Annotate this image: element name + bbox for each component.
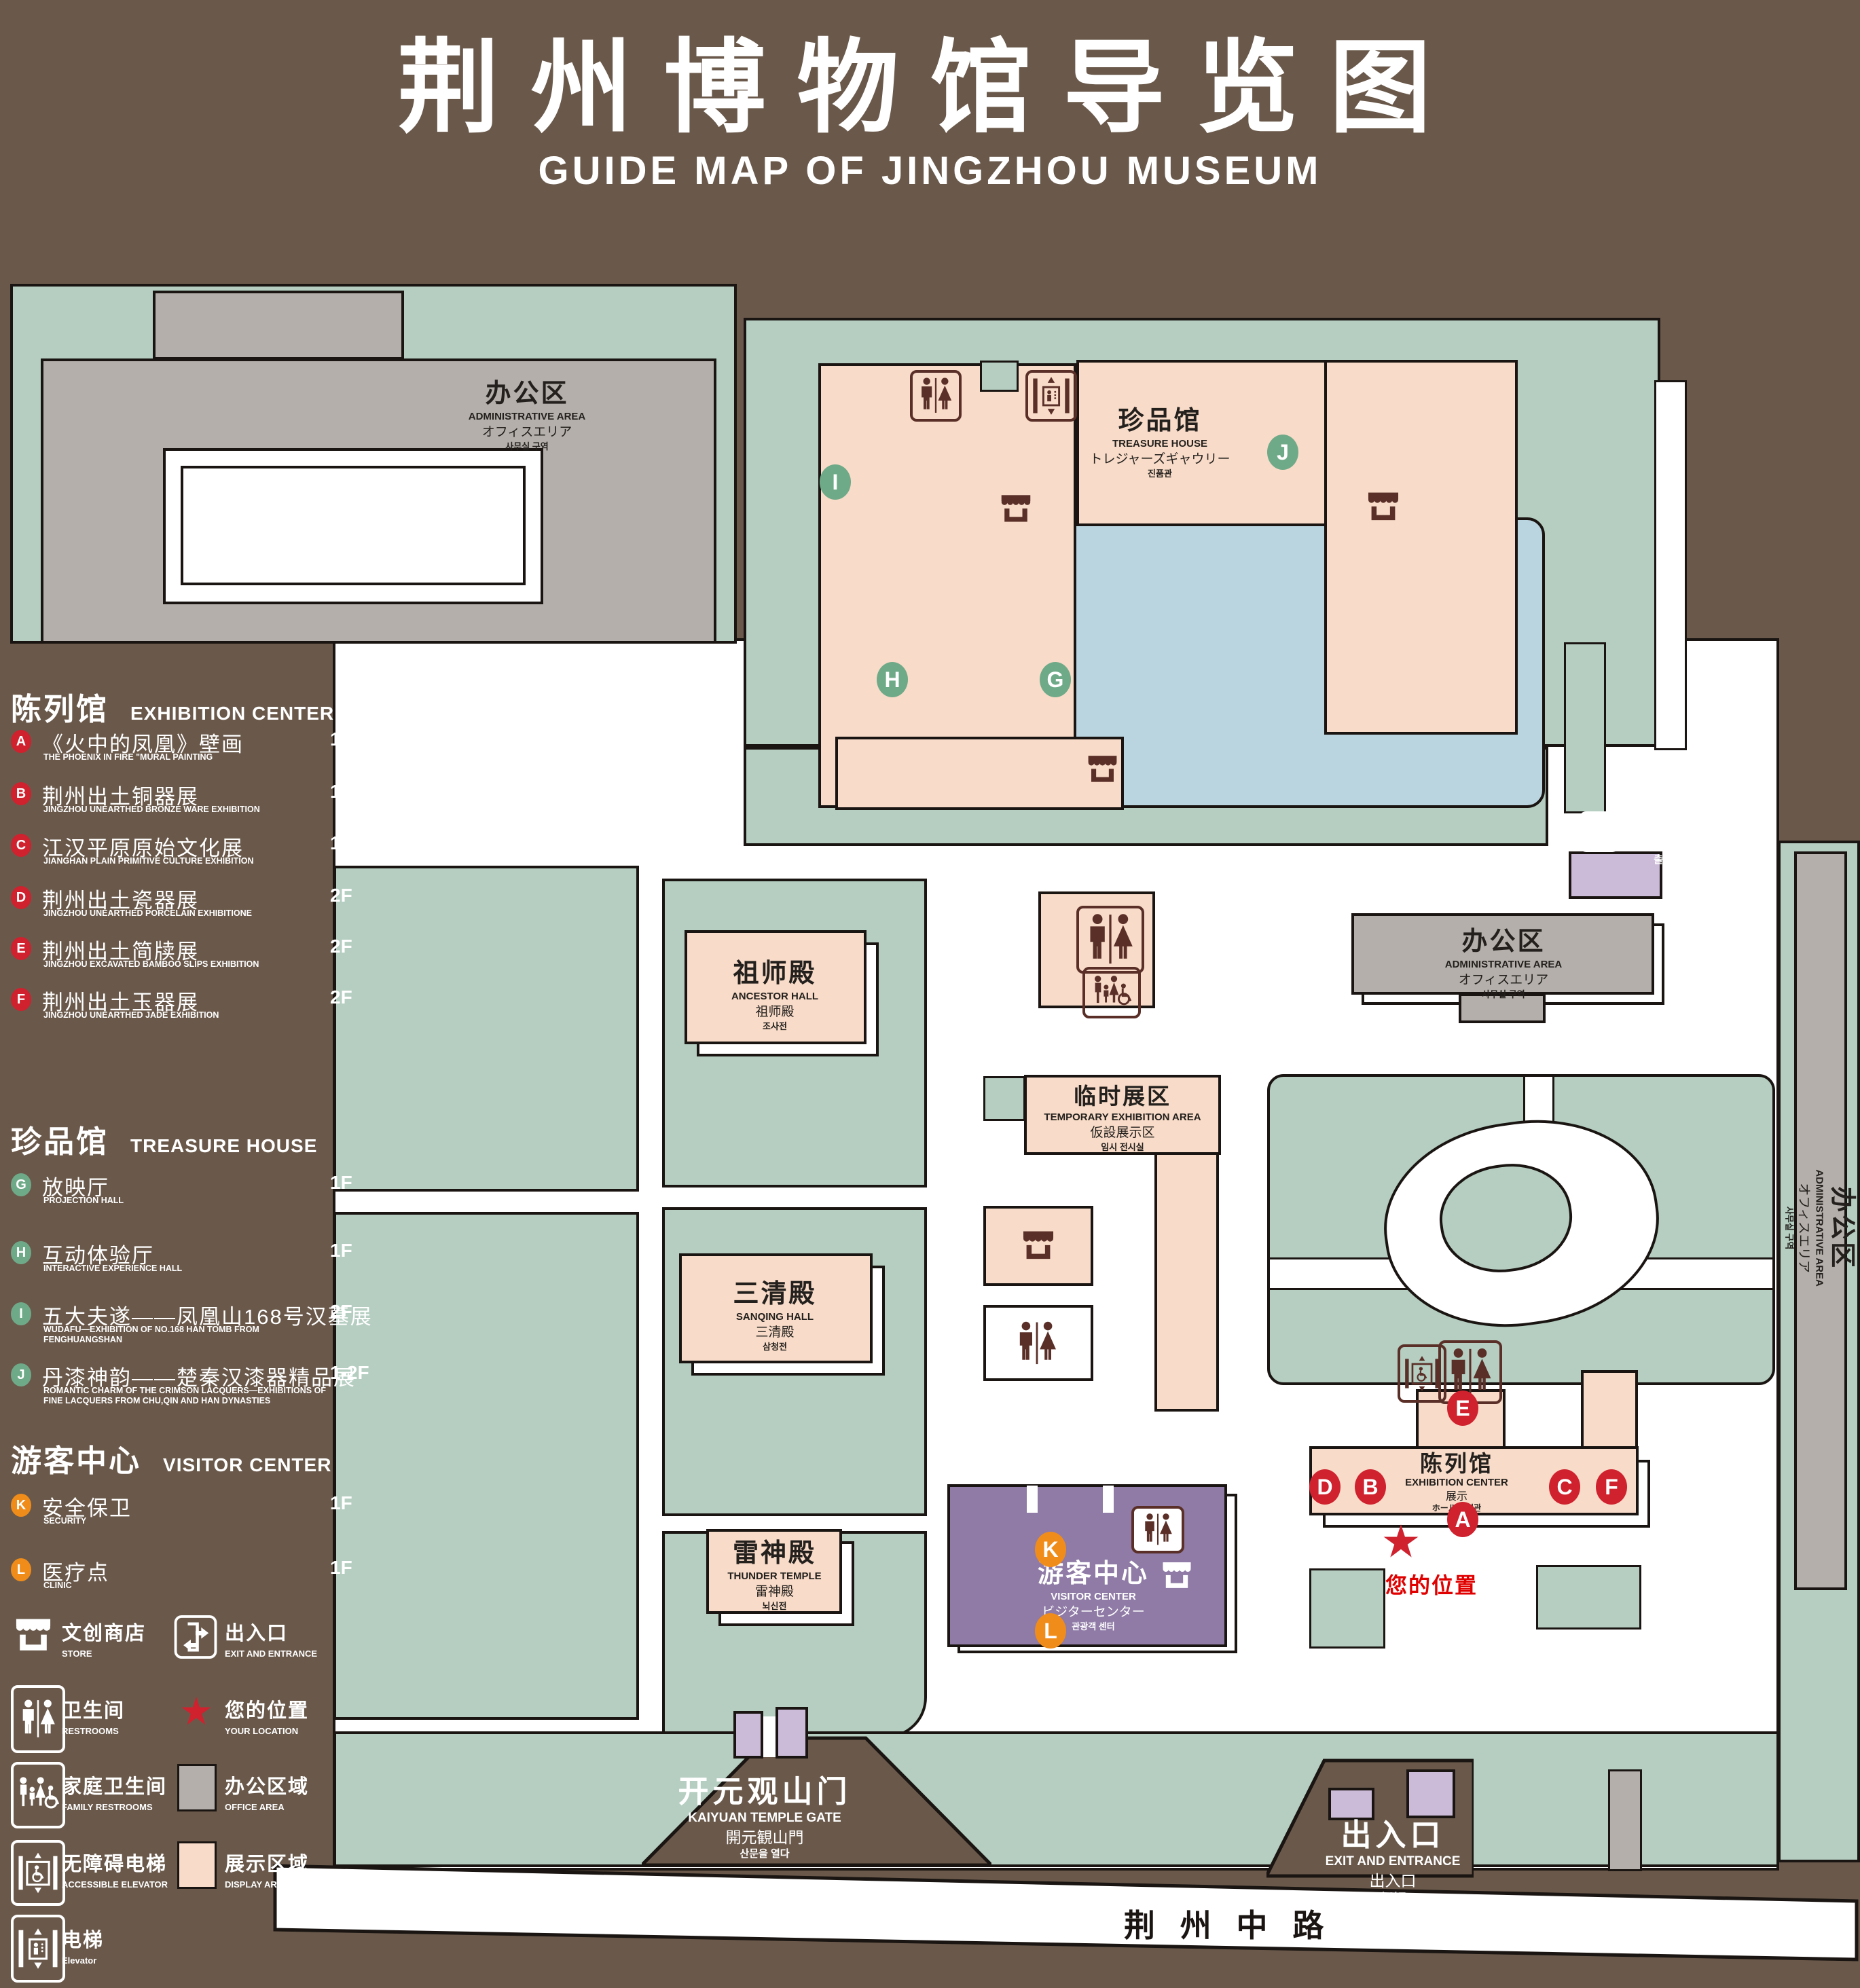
legend-item-floor: 1F — [330, 781, 384, 803]
legend-item-en: JINGZHOU UNEARTHED BRONZE WARE EXHIBITIO… — [43, 805, 329, 815]
legend-item-f: F 荆州出土玉器展 JINGZHOU UNEARTHED JADE EXHIBI… — [11, 988, 459, 1035]
gray-strip-bottom-right — [1608, 1769, 1642, 1871]
legend-marker-j: J — [11, 1363, 31, 1386]
map-marker-h: H — [877, 662, 908, 697]
legend-item-floor: 1-2F — [330, 1362, 384, 1384]
page-title: 荆州博物馆导览图 — [0, 5, 1860, 153]
visitor-center-door-1 — [1027, 1486, 1038, 1513]
thunder-temple-label: 雷神殿 THUNDER TEMPLE 雷神殿 뇌신전 — [671, 1539, 878, 1611]
treasure-house-bottom-stub — [835, 737, 1124, 810]
map-marker-l: L — [1035, 1613, 1066, 1649]
legend-item-g: G 放映厅 PROJECTION HALL 1F — [11, 1173, 459, 1221]
legend-marker-f: F — [11, 988, 31, 1011]
map-marker-a: A — [1447, 1502, 1478, 1537]
legend-marker-b: B — [11, 782, 31, 805]
elevator-icon — [11, 1915, 65, 1983]
temporary-exhibition-column — [1154, 1152, 1219, 1412]
legend-item-en: PROJECTION HALL — [43, 1196, 329, 1206]
family-restroom-icon — [11, 1762, 65, 1828]
office-area-swatch — [177, 1764, 217, 1811]
restroom-icon — [1076, 906, 1144, 974]
map-marker-c: C — [1549, 1469, 1580, 1505]
south-exit-building-right — [1406, 1769, 1455, 1818]
legend-item-floor: 1F — [330, 1172, 384, 1194]
legend-item-floor: 1F — [330, 1240, 384, 1262]
legend-item-en: WUDAFU—EXHIBITION OF NO.168 HAN TOMB FRO… — [43, 1325, 329, 1345]
store-icon — [11, 1610, 56, 1661]
legend-item-en: SECURITY — [43, 1516, 329, 1526]
gate-tower-right — [776, 1707, 808, 1759]
legend-item-i: I 五大夫遂——凤凰山168号汉墓展 WUDAFU—EXHIBITION OF … — [11, 1302, 459, 1350]
legend-section-treasure-house: 珍品馆 TREASURE HOUSE — [11, 1117, 317, 1161]
legend-item-d: D 荆州出土瓷器展 JINGZHOU UNEARTHED PORCELAIN E… — [11, 886, 459, 934]
legend-marker-h: H — [11, 1241, 31, 1264]
legend-sidebar: 陈列馆 EXHIBITION CENTER A 《火中的凤凰》壁画 THE PH… — [11, 679, 459, 1988]
legend-marker-l: L — [11, 1558, 31, 1581]
green-patch-below-exhibition-left — [1309, 1568, 1385, 1649]
exit-icon — [174, 1609, 217, 1665]
green-patch-below-exhibition-right — [1536, 1565, 1641, 1630]
your-location-label: 您的位置 — [1385, 1568, 1478, 1600]
legend-symbol-office-area: 办公区域 OFFICE AREA — [225, 1771, 401, 1812]
legend-marker-a: A — [11, 730, 31, 753]
map-marker-g: G — [1040, 662, 1071, 697]
legend-item-floor: 1F — [330, 1557, 384, 1579]
treasure-house-right-wing — [1324, 360, 1518, 735]
legend-item-floor: 2F — [330, 936, 384, 957]
legend-item-en: THE PHOENIX IN FIRE "MURAL PAINTING — [43, 752, 329, 762]
legend-marker-g: G — [11, 1173, 31, 1196]
kaiyuan-gate-label: 开元观山门 KAIYUAN TEMPLE GATE 開元観山門 산문을 열다 — [663, 1773, 867, 1860]
legend-item-a: A 《火中的凤凰》壁画 THE PHOENIX IN FIRE "MURAL P… — [11, 730, 459, 777]
map-marker-b: B — [1355, 1469, 1386, 1505]
legend-marker-i: I — [11, 1302, 31, 1325]
legend-item-en: JINGZHOU UNEARTHED JADE EXHIBITION — [43, 1010, 329, 1020]
admin-strip-label: 办公区 ADMINISTRATIVE AREA オフィスエリア 사무실 구역 — [1784, 1126, 1857, 1330]
legend-item-floor: 1F — [330, 832, 384, 854]
admin-right-label: 办公区 ADMINISTRATIVE AREA オフィスエリア 사무실 구역 — [1384, 927, 1623, 999]
legend-marker-c: C — [11, 834, 31, 857]
elevator-icon — [1025, 370, 1077, 422]
legend-symbol-exit: 出入口 EXIT AND ENTRANCE — [225, 1617, 401, 1659]
map-marker-k: K — [1035, 1532, 1066, 1567]
visitor-center-door-2 — [1103, 1486, 1114, 1513]
legend-symbol-restrooms: 卫生间 RESTROOMS — [62, 1695, 238, 1736]
legend-marker-e: E — [11, 937, 31, 960]
admin-top-left-label: 办公区 ADMINISTRATIVE AREA オフィスエリア 사무실 구역 — [407, 379, 646, 452]
legend-section-exhibition-center: 陈列馆 EXHIBITION CENTER — [11, 684, 334, 729]
section-title-en: EXHIBITION CENTER — [130, 703, 334, 724]
legend-item-en: JINGZHOU EXCAVATED BAMBOO SLIPS EXHIBITI… — [43, 959, 329, 970]
legend-item-floor: 2F — [330, 987, 384, 1008]
map-marker-f: F — [1596, 1469, 1627, 1505]
legend-item-e: E 荆州出土简牍展 JINGZHOU EXCAVATED BAMBOO SLIP… — [11, 937, 459, 984]
legend-item-floor: 1F — [330, 729, 384, 750]
legend-item-en: ROMANTIC CHARM OF THE CRIMSON LACQUERS—E… — [43, 1386, 329, 1406]
treasure-top-notch — [980, 361, 1019, 392]
gate-tower-left — [733, 1711, 763, 1759]
exhibition-center-right — [1581, 1370, 1638, 1450]
sanqing-hall-label: 三清殿 SANQING HALL 三清殿 삼청전 — [673, 1279, 877, 1352]
restroom-icon — [1013, 1320, 1061, 1367]
exit-bottom-label: 出入口 EXIT AND ENTRANCE 出入口 출입구 — [1291, 1817, 1495, 1903]
legend-item-c: C 江汉平原原始文化展 JIANGHAN PLAIN PRIMITIVE CUL… — [11, 834, 459, 881]
store-icon — [997, 490, 1035, 528]
section-title-zh: 陈列馆 — [11, 684, 109, 729]
legend-item-en: INTERACTIVE EXPERIENCE HALL — [43, 1264, 329, 1274]
section-title-zh: 游客中心 — [11, 1436, 141, 1480]
store-icon — [1084, 751, 1121, 788]
ancestor-hall-label: 祖师殿 ANCESTOR HALL 祖师殿 조사전 — [673, 959, 877, 1031]
legend-marker-k: K — [11, 1494, 31, 1517]
restroom-icon — [1131, 1506, 1184, 1553]
legend-section-visitor-center: 游客中心 VISITOR CENTER — [11, 1436, 331, 1480]
legend-item-floor: 2F — [330, 885, 384, 906]
page-subtitle: GUIDE MAP OF JINGZHOU MUSEUM — [0, 148, 1860, 194]
section-title-zh: 珍品馆 — [11, 1117, 109, 1161]
legend-symbol-elevator: 电梯 Elevator — [62, 1924, 238, 1966]
legend-item-k: K 安全保卫 SECURITY 1F — [11, 1494, 459, 1541]
gate-passage — [763, 1716, 776, 1757]
admin-building-top-tab — [153, 291, 404, 360]
temporary-exhibition-label: 临时展区 TEMPORARY EXHIBITION AREA 仮設展示区 임시 … — [1014, 1084, 1231, 1152]
legend-item-floor: 2F — [330, 1301, 384, 1323]
map-marker-e: E — [1447, 1391, 1478, 1426]
map-marker-i: I — [820, 464, 851, 500]
store-icon — [1159, 1555, 1195, 1597]
bottom-courtyard-band — [333, 1731, 1779, 1867]
map-marker-d: D — [1309, 1469, 1341, 1505]
legend-symbol-your-location: 您的位置 YOUR LOCATION — [225, 1695, 401, 1736]
path-right-of-treasure — [1654, 380, 1687, 750]
legend-item-en: JIANGHAN PLAIN PRIMITIVE CULTURE EXHIBIT… — [43, 856, 329, 866]
legend-item-j: J 丹漆神韵——楚秦汉漆器精品展 ROMANTIC CHARM OF THE C… — [11, 1363, 459, 1411]
legend-item-floor: 1F — [330, 1492, 384, 1514]
restroom-icon — [910, 370, 962, 422]
road-label: 荆 州 中 路 — [1124, 1901, 1332, 1946]
road-band — [272, 1859, 1860, 1988]
legend-item-h: H 互动体验厅 INTERACTIVE EXPERIENCE HALL 1F — [11, 1241, 459, 1289]
family-restroom-icon — [1082, 967, 1141, 1018]
section-title-en: VISITOR CENTER — [163, 1454, 331, 1476]
exit-icon — [1579, 811, 1620, 852]
south-exit-building-left — [1328, 1788, 1374, 1820]
location-star-icon — [181, 1696, 212, 1727]
store-icon — [1364, 487, 1403, 527]
display-area-swatch — [177, 1841, 217, 1889]
section-title-en: TREASURE HOUSE — [130, 1135, 317, 1157]
legend-item-en: JINGZHOU UNEARTHED PORCELAIN EXHIBITIONE — [43, 908, 329, 919]
admin-courtyard-inner — [181, 466, 526, 585]
your-location-star-icon — [1383, 1524, 1419, 1560]
store-icon — [1019, 1226, 1058, 1266]
legend-item-l: L 医疗点 CLINIC 1F — [11, 1558, 459, 1606]
accessible-elevator-icon — [11, 1840, 65, 1906]
restroom-icon — [11, 1685, 65, 1753]
legend-marker-d: D — [11, 886, 31, 909]
map-marker-j: J — [1267, 435, 1298, 470]
legend-symbol-display-area: 展示区域 DISPLAY AREA — [225, 1848, 401, 1890]
legend-item-en: CLINIC — [43, 1581, 329, 1591]
legend-item-b: B 荆州出土铜器展 JINGZHOU UNEARTHED BRONZE WARE… — [11, 782, 459, 830]
